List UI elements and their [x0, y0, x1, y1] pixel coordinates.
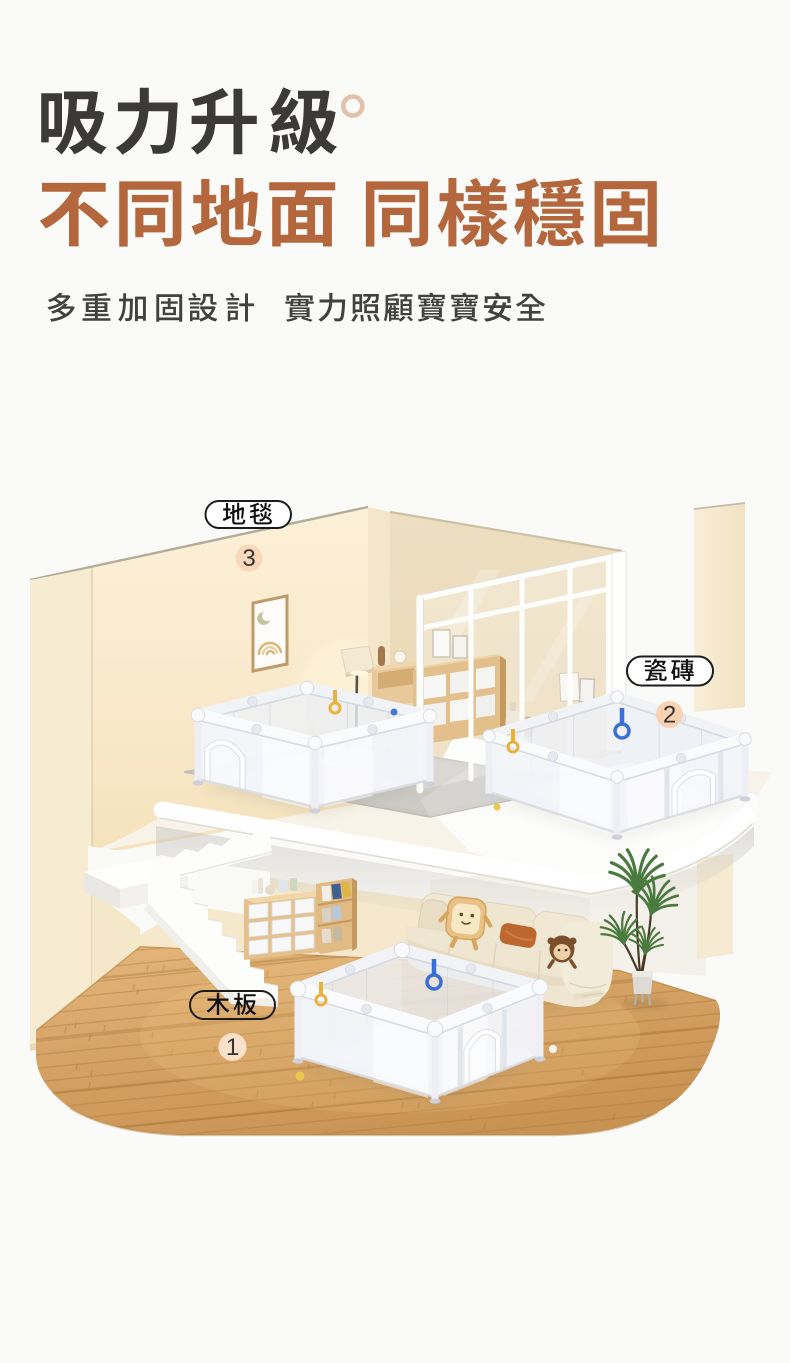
svg-text:2: 2: [663, 702, 676, 729]
svg-text:3: 3: [242, 545, 255, 572]
svg-text:1: 1: [226, 1034, 239, 1061]
